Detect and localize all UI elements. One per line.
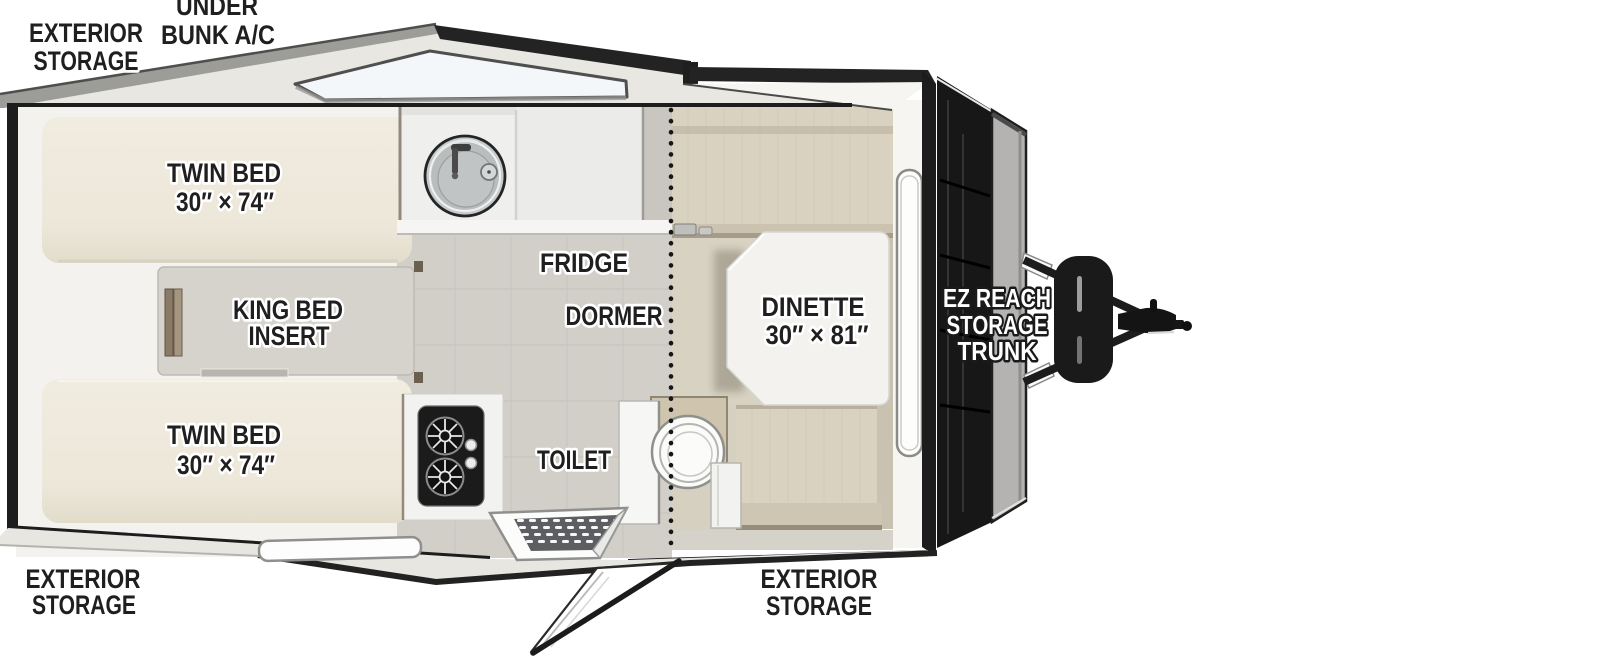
- svg-text:UNDER: UNDER: [176, 0, 258, 21]
- svg-text:INSERT: INSERT: [249, 321, 330, 351]
- svg-text:TWIN BED: TWIN BED: [167, 420, 281, 450]
- svg-text:TOILET: TOILET: [537, 445, 611, 475]
- svg-text:STORAGE: STORAGE: [32, 590, 136, 620]
- svg-text:FRIDGE: FRIDGE: [540, 248, 628, 278]
- svg-text:30″ × 74″: 30″ × 74″: [177, 450, 275, 480]
- svg-text:TWIN BED: TWIN BED: [167, 158, 281, 188]
- svg-text:BUNK A/C: BUNK A/C: [161, 20, 275, 50]
- svg-text:STORAGE: STORAGE: [766, 591, 872, 621]
- svg-text:30″ × 81″: 30″ × 81″: [766, 320, 869, 350]
- svg-text:TRUNK: TRUNK: [958, 336, 1037, 366]
- svg-text:30″ × 74″: 30″ × 74″: [176, 187, 274, 217]
- svg-text:DINETTE: DINETTE: [762, 292, 865, 322]
- svg-text:EXTERIOR: EXTERIOR: [761, 564, 878, 594]
- svg-text:EZ REACH: EZ REACH: [943, 283, 1051, 313]
- svg-text:EXTERIOR: EXTERIOR: [29, 18, 143, 48]
- svg-text:STORAGE: STORAGE: [34, 46, 139, 76]
- svg-text:DORMER: DORMER: [566, 301, 663, 331]
